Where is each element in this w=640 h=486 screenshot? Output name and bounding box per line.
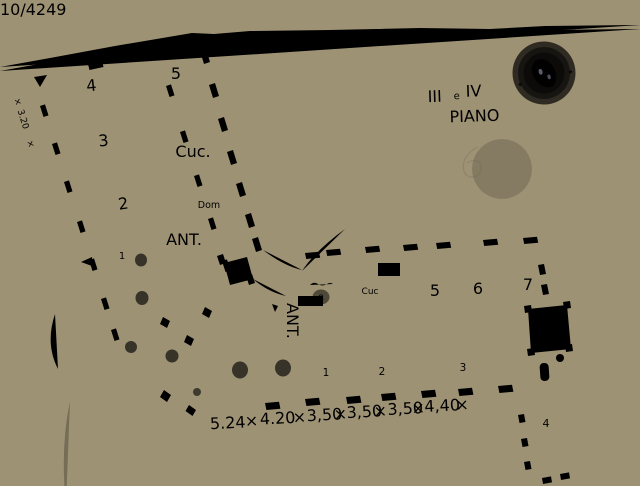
scanner-backing [0,0,640,486]
scanned-floorplan-sheet: 10/4249 [0,0,640,486]
